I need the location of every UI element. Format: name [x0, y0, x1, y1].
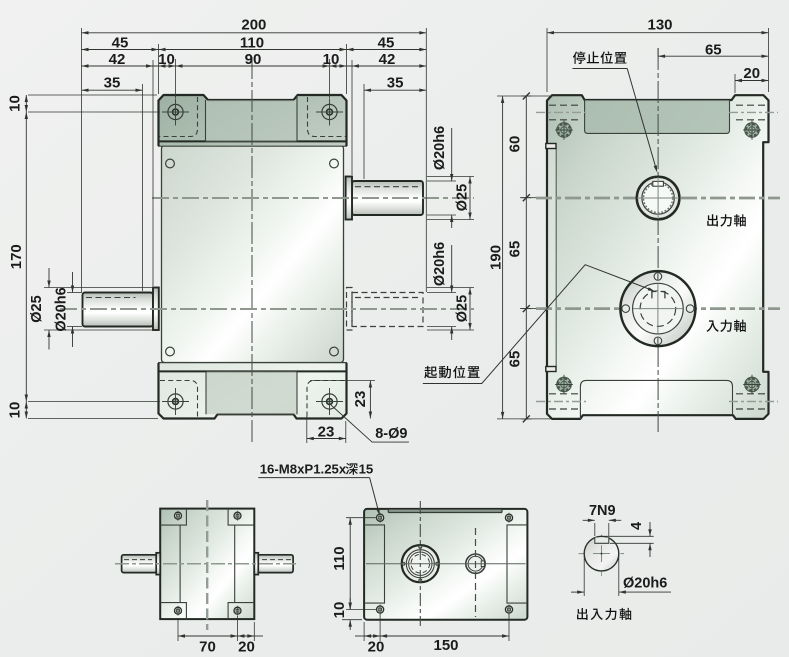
svg-text:8-Ø9: 8-Ø9 [375, 426, 407, 442]
svg-text:10: 10 [323, 51, 340, 68]
svg-text:110: 110 [331, 546, 348, 570]
svg-text:65: 65 [705, 41, 722, 58]
svg-text:170: 170 [8, 244, 25, 269]
svg-text:10: 10 [7, 95, 24, 112]
svg-text:Ø25: Ø25 [29, 295, 45, 322]
svg-text:10: 10 [158, 51, 175, 68]
svg-text:130: 130 [647, 17, 672, 34]
svg-text:23: 23 [318, 424, 335, 441]
svg-text:Ø25: Ø25 [455, 184, 471, 211]
svg-text:16-M8xP1.25x: 16-M8xP1.25x [260, 462, 347, 477]
svg-text:70: 70 [199, 639, 216, 656]
svg-text:Ø20h6: Ø20h6 [54, 287, 70, 331]
svg-text:110: 110 [240, 34, 264, 51]
svg-text:20: 20 [368, 639, 385, 656]
svg-text:35: 35 [104, 75, 121, 92]
svg-text:65: 65 [506, 241, 523, 258]
svg-text:42: 42 [109, 51, 126, 68]
svg-text:45: 45 [112, 34, 129, 51]
svg-text:10: 10 [7, 402, 24, 419]
svg-text:Ø20h6: Ø20h6 [623, 576, 667, 592]
svg-text:42: 42 [379, 51, 396, 68]
svg-text:190: 190 [488, 245, 505, 270]
svg-text:45: 45 [378, 34, 395, 51]
svg-text:10: 10 [331, 602, 348, 619]
svg-text:7N9: 7N9 [589, 503, 616, 519]
svg-text:60: 60 [506, 136, 523, 153]
svg-text:20: 20 [743, 65, 760, 82]
svg-text:200: 200 [241, 17, 266, 34]
svg-text:23: 23 [352, 391, 369, 408]
svg-text:Ø20h6: Ø20h6 [432, 126, 448, 170]
svg-text:15: 15 [359, 462, 374, 477]
svg-text:150: 150 [433, 637, 458, 654]
svg-text:90: 90 [245, 51, 262, 68]
svg-text:35: 35 [387, 75, 404, 92]
svg-text:4: 4 [629, 522, 645, 530]
svg-text:Ø20h6: Ø20h6 [432, 242, 448, 286]
svg-text:Ø25: Ø25 [455, 295, 471, 322]
svg-text:20: 20 [238, 639, 255, 656]
